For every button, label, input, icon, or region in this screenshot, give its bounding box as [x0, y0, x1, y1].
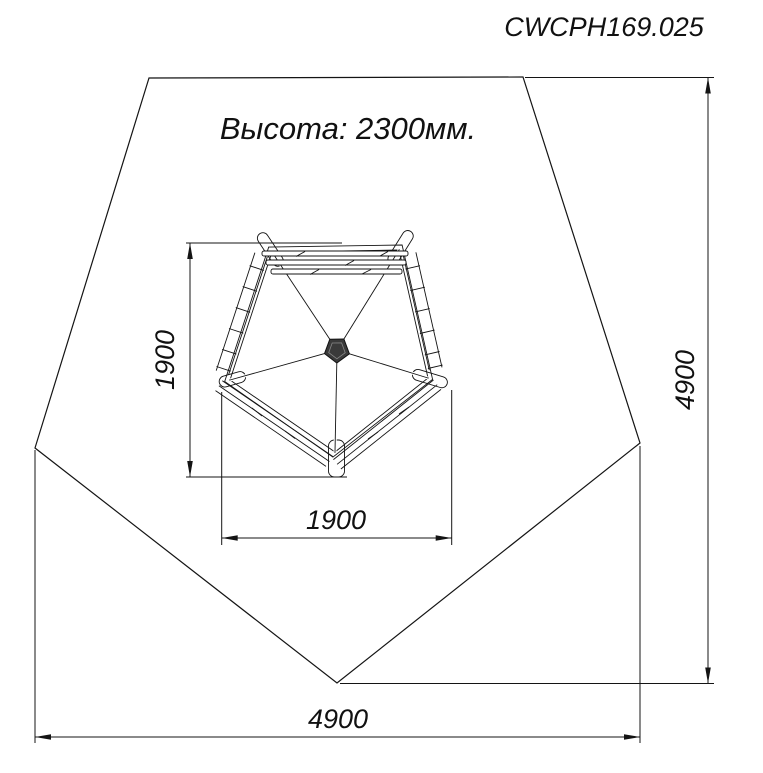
- top-rails: [262, 251, 408, 275]
- corner-beam-right: [411, 368, 449, 389]
- technical-drawing-canvas: CWCPH169.025 Высота: 2300мм.: [0, 0, 763, 773]
- technical-drawing-page: CWCPH169.025 Высота: 2300мм.: [0, 0, 763, 773]
- dimension-safety-zone-depth: 4900: [340, 78, 714, 684]
- dimension-label-structure-depth: 1900: [150, 330, 180, 390]
- playhouse-top-view: [216, 228, 449, 477]
- dimension-label-safety-zone-width: 4900: [308, 704, 368, 734]
- drawing-code-label: CWCPH169.025: [504, 12, 705, 42]
- dimension-safety-zone-width: 4900: [35, 446, 640, 743]
- rails-lower-left: [216, 381, 333, 467]
- ladder-left: [216, 253, 267, 375]
- dimension-label-safety-zone-depth: 4900: [670, 350, 700, 410]
- dimension-structure-depth: 1900: [150, 243, 347, 477]
- height-note-label: Высота: 2300мм.: [220, 111, 476, 146]
- rails-lower-right: [333, 380, 441, 469]
- ladder-right: [403, 252, 442, 370]
- dimension-label-structure-width: 1900: [306, 505, 366, 535]
- roof-hub: [325, 339, 350, 363]
